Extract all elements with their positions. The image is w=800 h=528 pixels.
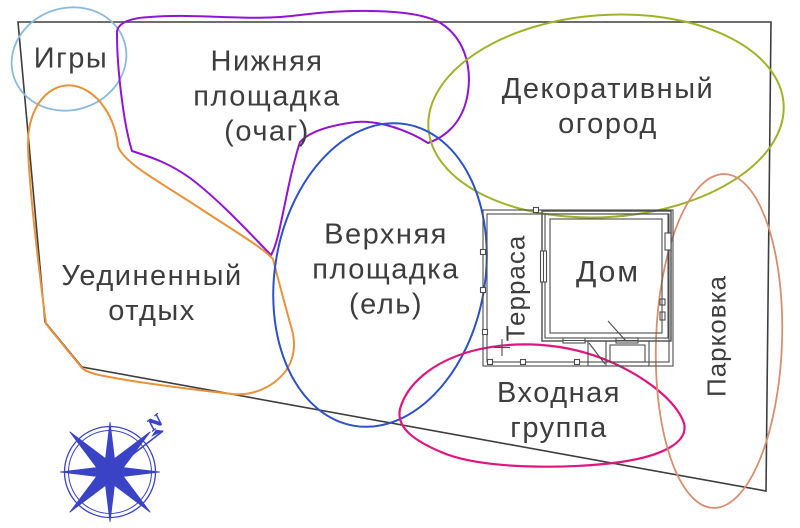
zone-label-upper-area: Верхняя площадка (ель)	[312, 218, 459, 323]
zone-label-line: (ель)	[312, 288, 459, 323]
compass-point-s	[105, 472, 115, 522]
zone-label-line: группа	[497, 411, 621, 446]
zone-label-line: Верхняя	[312, 218, 459, 253]
terrace-post	[481, 250, 486, 255]
terrace-post	[483, 330, 488, 335]
terrace-post	[488, 360, 493, 365]
zone-label-text: Парковка	[700, 275, 735, 397]
zone-label-parking: Парковка	[700, 275, 735, 397]
compass-rose: N	[60, 410, 168, 522]
terrace-post	[534, 208, 539, 213]
zone-label-line: Игры	[34, 42, 108, 77]
zone-label-games: Игры	[34, 42, 108, 77]
terrace-post	[521, 360, 526, 365]
zone-label-line: отдых	[61, 294, 242, 329]
terrace-label-text: Терраса	[499, 235, 534, 342]
terrace-post	[575, 360, 580, 365]
house-label-text: Дом	[576, 255, 640, 290]
compass-point-sw	[70, 472, 110, 512]
zone-label-line: площадка	[193, 80, 340, 115]
compass-point-se	[110, 472, 150, 512]
zone-label-line: Декоративный	[502, 72, 714, 107]
north-label: N	[143, 410, 168, 435]
compass-point-e	[110, 467, 160, 477]
zone-label-entrance-group: Входная группа	[497, 376, 621, 446]
zone-label-line: Уединенный	[61, 259, 242, 294]
zone-label-line: (очаг)	[193, 115, 340, 150]
compass-point-n	[105, 422, 115, 472]
house-label: Дом	[576, 255, 640, 290]
zone-label-line: Нижняя	[193, 45, 340, 80]
zone-label-line: Входная	[497, 376, 621, 411]
compass-point-nw	[70, 432, 110, 472]
site-plan: N Игры Нижняя площадка (очаг) Декоративн…	[0, 0, 800, 528]
compass-point-w	[60, 467, 110, 477]
zone-label-lower-area: Нижняя площадка (очаг)	[193, 45, 340, 150]
compass-shapes: N	[60, 410, 168, 522]
zone-label-line: огород	[502, 107, 714, 142]
porch-inner-line	[610, 345, 645, 362]
window-right	[665, 233, 671, 250]
terrace-post	[481, 288, 486, 293]
compass-point-ne	[110, 432, 150, 472]
zone-label-line: площадка	[312, 253, 459, 288]
zone-label-decorative-garden: Декоративный огород	[502, 72, 714, 142]
zone-label-secluded-rest: Уединенный отдых	[61, 259, 242, 329]
terrace-label: Терраса	[499, 235, 534, 342]
